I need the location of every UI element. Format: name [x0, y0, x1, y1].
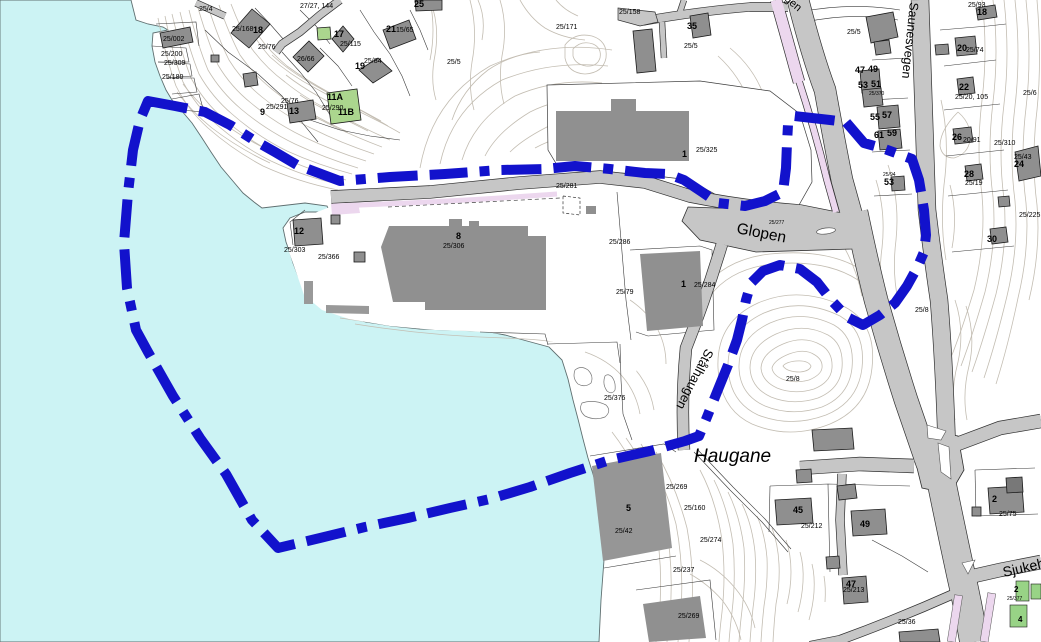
svg-text:25/225: 25/225	[1019, 212, 1041, 219]
svg-text:25/79: 25/79	[616, 289, 634, 296]
svg-text:11B: 11B	[338, 107, 355, 117]
svg-text:25/325: 25/325	[696, 147, 718, 154]
svg-text:25/36: 25/36	[898, 619, 916, 626]
svg-text:26: 26	[952, 132, 962, 142]
svg-text:2: 2	[992, 494, 997, 504]
svg-text:25/366: 25/366	[318, 254, 340, 261]
svg-text:25/171: 25/171	[556, 24, 578, 31]
svg-text:25/8: 25/8	[915, 307, 929, 314]
svg-text:61: 61	[874, 130, 884, 140]
svg-text:11A: 11A	[327, 92, 344, 102]
svg-text:53: 53	[858, 80, 868, 90]
svg-text:25/269: 25/269	[678, 613, 700, 620]
svg-text:59: 59	[887, 128, 897, 138]
svg-text:Haugane: Haugane	[694, 446, 771, 467]
svg-text:5: 5	[626, 503, 631, 513]
svg-text:18: 18	[977, 7, 987, 17]
svg-text:21: 21	[386, 24, 396, 34]
svg-text:12: 12	[294, 226, 304, 236]
svg-text:20/91: 20/91	[963, 137, 981, 144]
svg-text:25/370: 25/370	[869, 91, 885, 97]
svg-text:57: 57	[882, 110, 892, 120]
svg-text:15/65: 15/65	[396, 27, 414, 34]
svg-text:18: 18	[253, 25, 263, 35]
svg-text:25/168: 25/168	[232, 26, 254, 33]
svg-text:25/75: 25/75	[999, 511, 1017, 518]
svg-text:25/376: 25/376	[604, 395, 626, 402]
svg-text:22: 22	[959, 82, 969, 92]
svg-text:25/303: 25/303	[284, 247, 306, 254]
svg-text:30: 30	[987, 234, 997, 244]
svg-text:25/84: 25/84	[364, 58, 382, 65]
svg-text:1: 1	[681, 279, 686, 289]
svg-text:25/6: 25/6	[1023, 90, 1037, 97]
svg-text:25/5: 25/5	[684, 43, 698, 50]
svg-text:25/286: 25/286	[609, 239, 631, 246]
svg-text:25/160: 25/160	[684, 505, 706, 512]
svg-text:25/306: 25/306	[443, 243, 465, 250]
svg-text:13: 13	[289, 106, 299, 116]
svg-text:25/20, 105: 25/20, 105	[955, 94, 988, 101]
svg-text:25/180: 25/180	[162, 74, 184, 81]
svg-text:25/310: 25/310	[994, 140, 1016, 147]
svg-text:25/8: 25/8	[786, 376, 800, 383]
svg-text:25/4: 25/4	[199, 6, 213, 13]
svg-text:25/291: 25/291	[266, 104, 288, 111]
svg-text:25/76: 25/76	[258, 44, 276, 51]
svg-text:25/277: 25/277	[769, 220, 785, 226]
svg-text:35: 35	[687, 21, 697, 31]
svg-text:27/27, 144: 27/27, 144	[300, 3, 333, 10]
svg-text:25/284: 25/284	[694, 282, 716, 289]
svg-text:25: 25	[414, 0, 424, 9]
svg-text:17: 17	[334, 29, 344, 39]
svg-text:25/19: 25/19	[965, 180, 983, 187]
svg-text:24: 24	[1014, 159, 1024, 169]
svg-text:55: 55	[870, 112, 880, 122]
svg-text:25/74: 25/74	[966, 47, 984, 54]
svg-text:25/309: 25/309	[164, 60, 186, 67]
svg-text:53: 53	[884, 177, 894, 187]
svg-text:25/237: 25/237	[673, 567, 695, 574]
svg-text:25/5: 25/5	[847, 29, 861, 36]
svg-text:49: 49	[868, 64, 878, 74]
svg-text:25/377: 25/377	[1007, 596, 1023, 602]
svg-text:45: 45	[793, 505, 803, 515]
svg-text:25/158: 25/158	[619, 9, 641, 16]
svg-text:47: 47	[855, 65, 865, 75]
svg-text:1: 1	[682, 149, 687, 159]
svg-text:26/66: 26/66	[297, 56, 315, 63]
svg-text:51: 51	[871, 79, 881, 89]
svg-text:28: 28	[964, 169, 974, 179]
svg-text:25/213: 25/213	[843, 587, 865, 594]
svg-text:2: 2	[1014, 585, 1019, 594]
svg-text:9: 9	[260, 107, 265, 117]
svg-text:25/002: 25/002	[163, 36, 185, 43]
svg-text:25/269: 25/269	[666, 484, 688, 491]
svg-text:25/200: 25/200	[161, 51, 183, 58]
svg-text:25/274: 25/274	[700, 537, 722, 544]
svg-text:8: 8	[456, 231, 461, 241]
svg-text:25/5: 25/5	[447, 59, 461, 66]
svg-text:25/212: 25/212	[801, 523, 823, 530]
svg-text:25/42: 25/42	[615, 528, 633, 535]
svg-text:4: 4	[1018, 615, 1023, 624]
svg-text:25/281: 25/281	[556, 183, 578, 190]
svg-text:49: 49	[860, 519, 870, 529]
svg-text:25/115: 25/115	[340, 41, 361, 48]
